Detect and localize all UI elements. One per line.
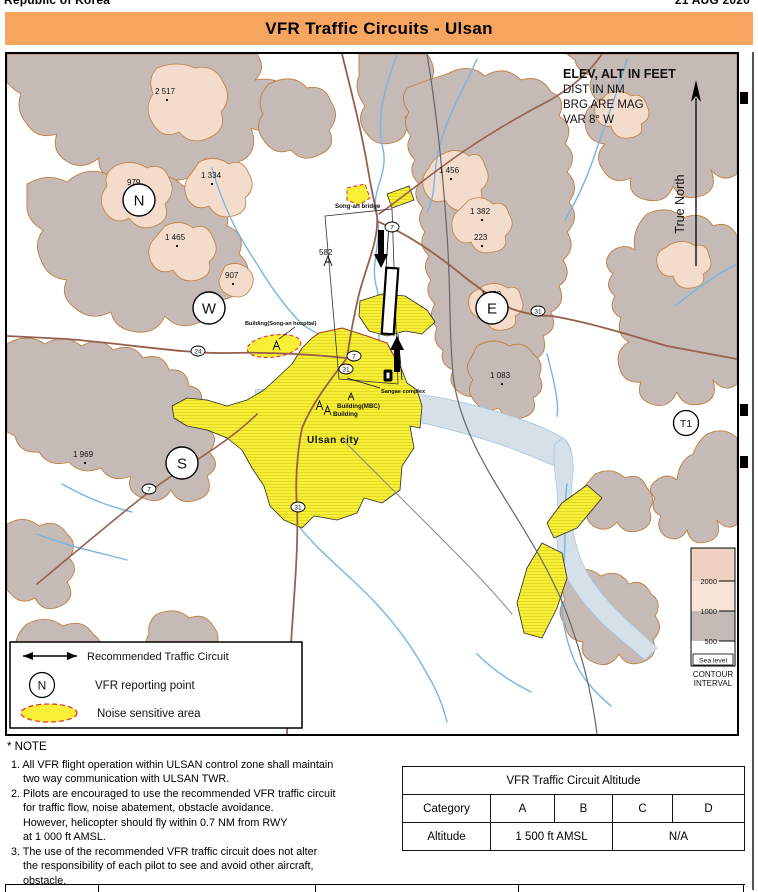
category-a: A	[491, 795, 555, 823]
road-shield: 24	[191, 346, 205, 356]
road-shield: 7	[385, 222, 399, 232]
svg-text:7: 7	[390, 225, 394, 232]
hospital-label: Building(Song-an hospital)	[245, 321, 317, 327]
urban-area-se-2	[517, 543, 567, 638]
contour-tick-500: 500	[704, 637, 717, 646]
bottom-grid-line	[5, 884, 745, 885]
svg-text:24: 24	[194, 349, 202, 356]
category-d: D	[673, 795, 745, 823]
complex-label: Sangae complex	[381, 389, 426, 395]
legend-circuit-label: Recommended Traffic Circuit	[87, 651, 229, 663]
note-item-2: 2. Pilots are encouraged to use the reco…	[11, 787, 399, 845]
bottom-grid-stub	[98, 884, 99, 892]
city-label: Ulsan city	[307, 435, 359, 446]
spot-elevation: 1 382	[470, 207, 491, 216]
building-label: Building	[333, 411, 358, 418]
spot-elevation: 1 083	[490, 371, 511, 380]
noise-area-bridge	[347, 184, 370, 205]
notes: * NOTE 1. All VFR flight operation withi…	[7, 740, 399, 888]
bottom-grid-stub	[743, 884, 744, 892]
altitude-header: Altitude	[403, 823, 491, 851]
spot-elevation: 223	[474, 233, 488, 242]
legend-noise-label: Noise sensitive area	[97, 708, 201, 720]
table-title: VFR Traffic Circuit Altitude	[403, 767, 745, 795]
obstacle-icon	[324, 256, 332, 266]
frame-tick	[740, 92, 748, 104]
true-north-label: True North	[673, 174, 687, 233]
reporting-point-e: E	[476, 292, 508, 324]
svg-text:7: 7	[147, 487, 151, 494]
bottom-grid-stub	[5, 884, 6, 892]
legend-vfr-point-symbol: N	[38, 679, 47, 693]
bottom-grid-stub	[315, 884, 316, 892]
contour-caption-2: INTERVAL	[694, 679, 733, 688]
svg-text:31: 31	[294, 505, 302, 512]
noise-area-hospital	[246, 331, 303, 360]
sea-level-label: Sea level	[699, 658, 727, 665]
spot-elevation: 1 465	[165, 233, 186, 242]
info-brg: BRG ARE MAG	[563, 99, 644, 111]
category-header: Category	[403, 795, 491, 823]
contour-legend: 2000 1000 500 Sea level CONTOUR INTERVAL	[691, 548, 735, 688]
spot-elevation: 1 969	[73, 450, 94, 459]
svg-text:7: 7	[352, 354, 356, 361]
page-title: VFR Traffic Circuits - Ulsan	[265, 19, 493, 39]
info-var: VAR 8° W	[563, 114, 614, 126]
road-shield: 7	[142, 484, 156, 494]
road-shield: 7	[347, 351, 361, 361]
mbc-label: Building(MBC)	[337, 403, 380, 410]
svg-text:31: 31	[342, 367, 350, 374]
legend-box: Recommended Traffic Circuit N VFR report…	[10, 642, 302, 728]
legend-vfr-point-label: VFR reporting point	[95, 680, 196, 692]
svg-text:N: N	[134, 193, 145, 210]
road-shield: 31	[339, 364, 353, 374]
notes-heading: * NOTE	[7, 740, 399, 755]
altitude-value-cd: N/A	[613, 823, 745, 851]
contour-caption-1: CONTOUR	[693, 670, 734, 679]
spot-elevation: 1 456	[439, 166, 460, 175]
frame-tick	[740, 456, 748, 468]
spot-elevation: 907	[225, 271, 239, 280]
svg-text:T1: T1	[680, 418, 692, 430]
reporting-point-t1: T1	[674, 411, 699, 436]
svg-text:S: S	[177, 456, 187, 473]
map-canvas: Song-an bridge Building(Song-an hospital…	[7, 54, 737, 734]
frame-tick	[740, 404, 748, 416]
category-c: C	[613, 795, 673, 823]
info-dist: DIST IN NM	[563, 84, 625, 96]
bridge-label: Song-an bridge	[335, 203, 381, 210]
info-elev: ELEV, ALT IN FEET	[563, 67, 676, 81]
contour-tick-2000: 2000	[700, 577, 717, 586]
map: Song-an bridge Building(Song-an hospital…	[5, 52, 739, 736]
chart-page: Republic of Korea 21 AUG 2020 VFR Traffi…	[0, 0, 758, 892]
vfr-altitude-table: VFR Traffic Circuit Altitude Category A …	[402, 766, 745, 851]
reporting-point-w: W	[193, 292, 225, 324]
road-shield: 31	[291, 502, 305, 512]
spot-elevation: 2 517	[155, 87, 176, 96]
svg-text:31: 31	[534, 309, 542, 316]
chart-left-header: Republic of Korea	[4, 0, 110, 7]
spot-elevation: 1 334	[201, 171, 222, 180]
category-b: B	[555, 795, 613, 823]
svg-text:E: E	[487, 301, 497, 318]
note-item-3: 3. The use of the recommended VFR traffi…	[11, 845, 399, 889]
svg-text:W: W	[202, 301, 217, 318]
reporting-point-n: N	[123, 184, 155, 216]
page-edge-line	[752, 52, 754, 890]
note-item-1: 1. All VFR flight operation within ULSAN…	[11, 758, 399, 787]
bottom-grid-stub	[518, 884, 519, 892]
contour-tick-1000: 1000	[700, 607, 717, 616]
chart-date-header: 21 AUG 2020	[675, 0, 750, 7]
title-bar: VFR Traffic Circuits - Ulsan	[5, 12, 753, 45]
spot-elevation: 582	[319, 248, 333, 257]
altitude-value-ab: 1 500 ft AMSL	[491, 823, 613, 851]
reporting-point-s: S	[166, 447, 198, 479]
road-shield: 31	[531, 306, 545, 316]
